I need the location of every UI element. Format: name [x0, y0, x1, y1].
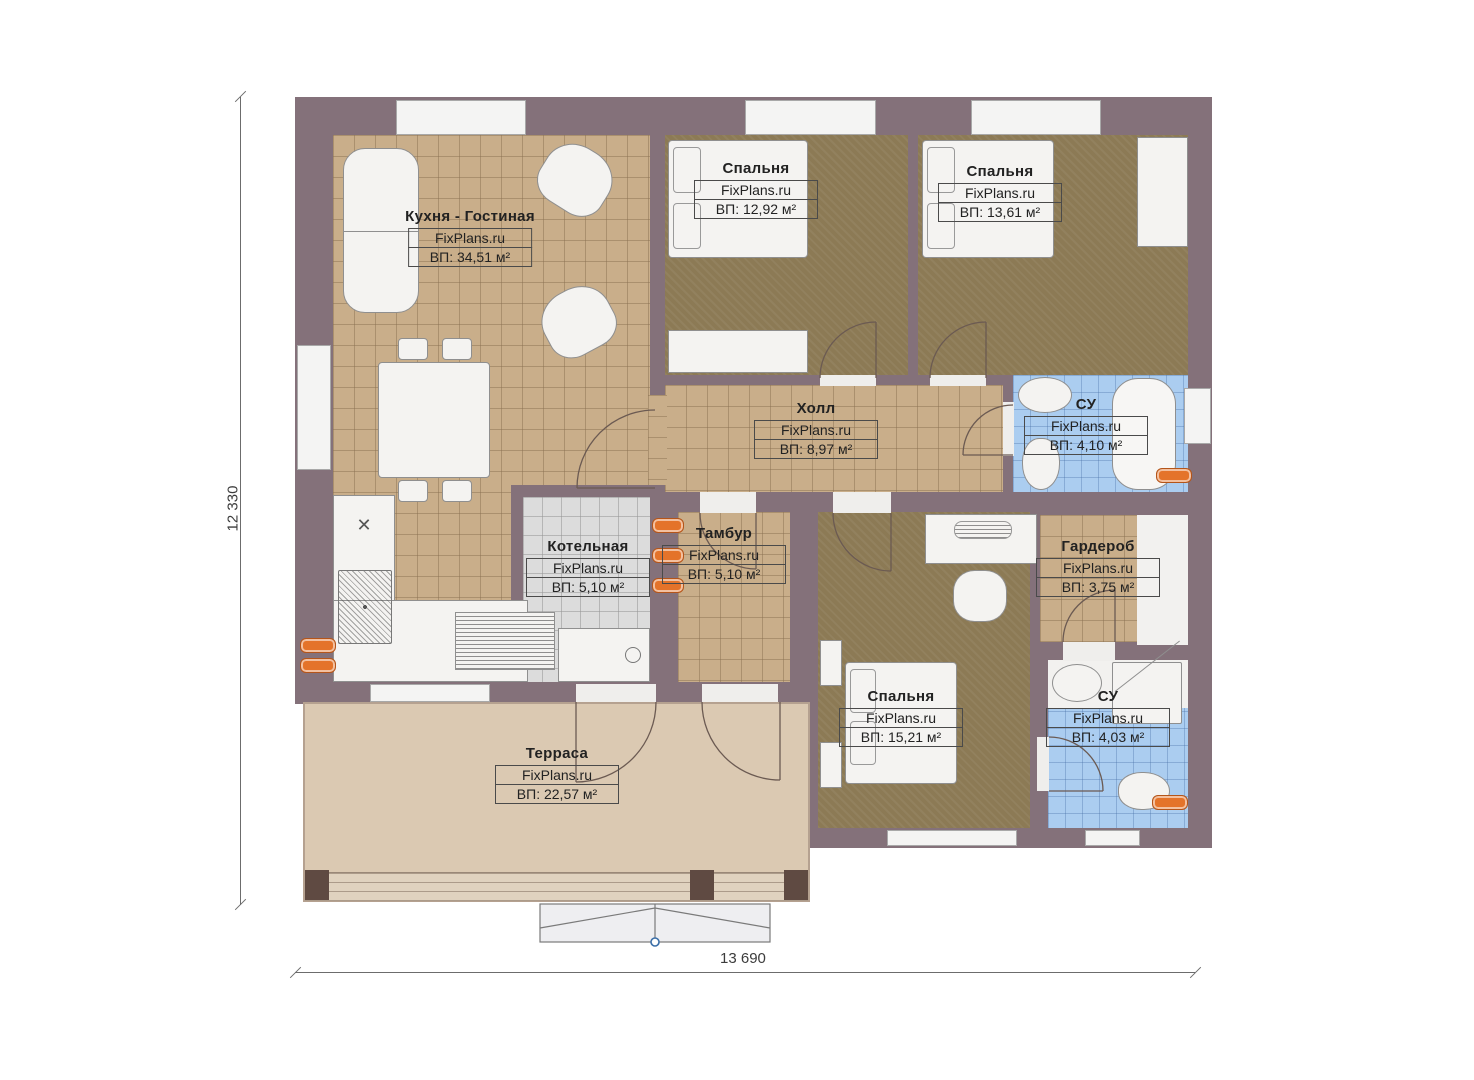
room-site: FixPlans.ru [662, 545, 786, 565]
label-bedroom2: Спальня FixPlans.ru ВП: 13,61 м² [938, 163, 1062, 222]
room-name: Спальня [967, 163, 1034, 180]
room-site: FixPlans.ru [1046, 708, 1170, 728]
room-site: FixPlans.ru [495, 765, 619, 785]
room-area: ВП: 12,92 м² [694, 199, 818, 219]
room-area: ВП: 22,57 м² [495, 784, 619, 804]
room-name: Котельная [547, 538, 628, 555]
room-name: Гардероб [1061, 538, 1134, 555]
label-bath1: СУ FixPlans.ru ВП: 4,10 м² [1024, 396, 1148, 455]
dimension-width-label: 13 690 [720, 950, 766, 967]
door-arc-bedroom1 [820, 322, 876, 378]
room-site: FixPlans.ru [1036, 558, 1160, 578]
room-name: Терраса [526, 745, 588, 762]
label-bedroom1: Спальня FixPlans.ru ВП: 12,92 м² [694, 160, 818, 219]
door-arc-wardrobe [1063, 590, 1115, 642]
entrance-point-icon [651, 938, 659, 946]
room-site: FixPlans.ru [1024, 416, 1148, 436]
room-name: Тамбур [696, 525, 752, 542]
door-arc-bedroom3 [833, 513, 891, 571]
room-site: FixPlans.ru [526, 558, 650, 578]
label-bedroom3: Спальня FixPlans.ru ВП: 15,21 м² [839, 688, 963, 747]
door-arc-bedroom2 [930, 322, 986, 378]
room-name: Холл [797, 400, 836, 417]
room-area: ВП: 3,75 м² [1036, 577, 1160, 597]
door-arc-tambour-terrace [702, 702, 780, 780]
room-name: СУ [1076, 396, 1097, 413]
room-area: ВП: 8,97 м² [754, 439, 878, 459]
label-kitchen-living: Кухня - Гостиная FixPlans.ru ВП: 34,51 м… [405, 208, 535, 267]
room-site: FixPlans.ru [938, 183, 1062, 203]
dimension-height-label: 12 330 [224, 486, 241, 532]
room-site: FixPlans.ru [408, 228, 532, 248]
label-wardrobe: Гардероб FixPlans.ru ВП: 3,75 м² [1036, 538, 1160, 597]
room-name: СУ [1098, 688, 1119, 705]
label-tambour: Тамбур FixPlans.ru ВП: 5,10 м² [662, 525, 786, 584]
room-site: FixPlans.ru [754, 420, 878, 440]
room-area: ВП: 4,03 м² [1046, 727, 1170, 747]
room-name: Кухня - Гостиная [405, 208, 535, 225]
room-area: ВП: 34,51 м² [408, 247, 532, 267]
label-boiler-room: Котельная FixPlans.ru ВП: 5,10 м² [526, 538, 650, 597]
room-area: ВП: 5,10 м² [526, 577, 650, 597]
label-bath2: СУ FixPlans.ru ВП: 4,03 м² [1046, 688, 1170, 747]
label-hall: Холл FixPlans.ru ВП: 8,97 м² [754, 400, 878, 459]
room-area: ВП: 5,10 м² [662, 564, 786, 584]
dimension-line-horizontal [295, 972, 1195, 973]
room-name: Спальня [723, 160, 790, 177]
room-name: Спальня [868, 688, 935, 705]
entrance-steps-marker [540, 904, 770, 946]
room-site: FixPlans.ru [839, 708, 963, 728]
door-arc-kitchen-hall [577, 410, 655, 488]
room-area: ВП: 15,21 м² [839, 727, 963, 747]
label-terrace: Терраса FixPlans.ru ВП: 22,57 м² [495, 745, 619, 804]
floor-plan-canvas: ✕ [0, 0, 1474, 1080]
door-arc-bath1 [963, 405, 1013, 455]
room-area: ВП: 13,61 м² [938, 202, 1062, 222]
room-area: ВП: 4,10 м² [1024, 435, 1148, 455]
room-site: FixPlans.ru [694, 180, 818, 200]
